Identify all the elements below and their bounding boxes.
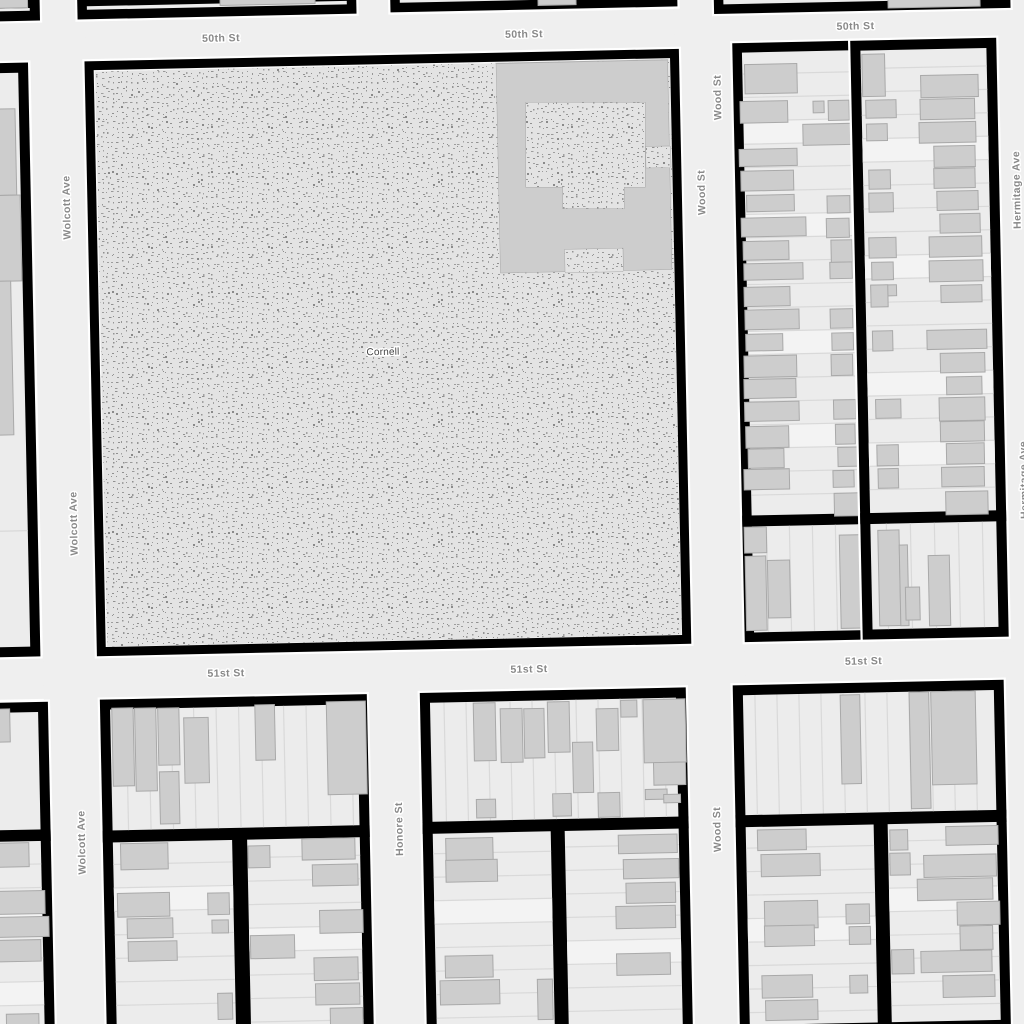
svg-text:Wolcott Ave: Wolcott Ave	[75, 810, 88, 874]
svg-text:Wood St: Wood St	[711, 75, 724, 121]
svg-text:50th St: 50th St	[505, 28, 543, 41]
svg-text:Cornell: Cornell	[366, 347, 399, 359]
svg-text:51st St: 51st St	[510, 663, 548, 676]
svg-text:Hermitage Ave: Hermitage Ave	[1017, 441, 1024, 519]
svg-text:50th St: 50th St	[202, 32, 240, 45]
svg-text:Hermitage Ave: Hermitage Ave	[1010, 151, 1024, 229]
svg-text:Honore St: Honore St	[393, 802, 406, 856]
svg-text:Wolcott Ave: Wolcott Ave	[67, 491, 80, 555]
svg-text:50th St: 50th St	[836, 20, 874, 33]
svg-text:51st St: 51st St	[845, 655, 883, 668]
svg-text:Wolcott Ave: Wolcott Ave	[60, 175, 73, 239]
svg-text:51st St: 51st St	[207, 667, 245, 680]
svg-text:Wood St: Wood St	[711, 807, 724, 853]
svg-text:Wood St: Wood St	[695, 170, 708, 216]
